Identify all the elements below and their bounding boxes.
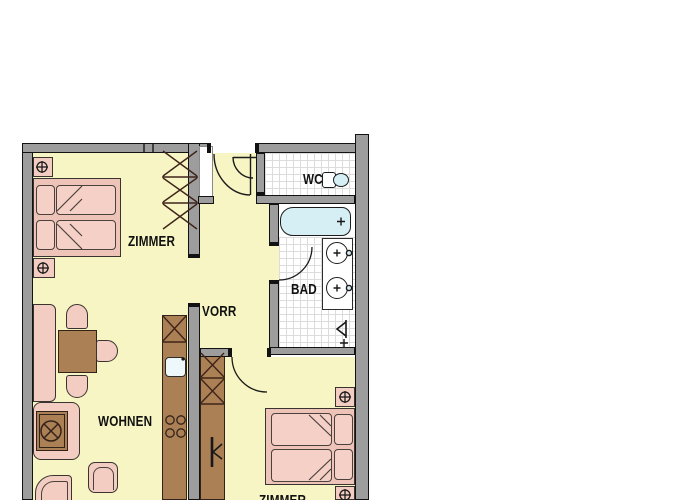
room-label-zimmer-top: ZIMMER [128, 234, 175, 249]
bed-mattress [56, 185, 116, 215]
nightstand [33, 258, 55, 278]
bed-pillow [36, 185, 55, 215]
door-jamb [188, 254, 200, 258]
bed-pillow [334, 449, 353, 480]
nightstand [335, 387, 355, 407]
chair [66, 304, 88, 329]
door-jamb [267, 348, 271, 357]
wall-bad-left-upper [269, 204, 279, 246]
corner-table [36, 411, 68, 451]
floor-vorraum [200, 197, 269, 348]
wall-left [22, 143, 33, 500]
wall-top-right [255, 143, 369, 153]
bench-seat [33, 304, 56, 402]
floor-passage-gap [188, 258, 200, 303]
toilet-bowl [333, 173, 349, 187]
door-jamb [188, 303, 200, 307]
room-label-vorraum: VORR [202, 304, 236, 319]
entrance-niche-stub [198, 196, 214, 204]
floor-vorraum-upper [213, 153, 256, 197]
armchair [88, 462, 118, 493]
bedroom-cabinet [200, 352, 225, 500]
wall-wc-bottom [256, 195, 355, 204]
floor-bad-door-gap [269, 246, 279, 280]
kitchenette [162, 315, 187, 500]
armchair-corner [35, 475, 72, 500]
wall-right [355, 134, 369, 500]
nightstand [33, 157, 53, 177]
bathtub [280, 207, 351, 236]
washbasin [326, 242, 348, 264]
armchair-seat-line [41, 481, 68, 500]
kitchen-sink [165, 357, 186, 377]
nightstand [335, 486, 355, 500]
room-label-wc: WC [303, 172, 323, 187]
entrance-niche [199, 146, 213, 197]
room-label-bad: BAD [291, 282, 317, 297]
bed-mattress [56, 220, 116, 250]
room-label-wohnen: WOHNEN [98, 414, 152, 429]
door-jamb [269, 242, 279, 246]
bed-pillow [334, 414, 353, 445]
corner-table-inner-line [39, 414, 65, 448]
floor-zimmer-door-gap [232, 348, 267, 357]
washbasin [326, 277, 348, 299]
bed-pillow [36, 220, 55, 250]
armchair-seat-line [93, 467, 114, 490]
chair [96, 340, 118, 362]
floor-plan-canvas: ZIMMER VORR WOHNEN WC BAD ZIMMER [0, 0, 700, 500]
wall-bad-left-lower [269, 280, 279, 355]
door-jamb [269, 280, 279, 284]
wall-bad-bottom [269, 347, 355, 355]
dining-table [58, 330, 97, 373]
door-jamb [256, 192, 265, 195]
door-jamb [207, 143, 211, 153]
door-jamb [255, 143, 259, 153]
wall-wc-left [256, 153, 265, 197]
bed-mattress [271, 449, 332, 482]
door-jamb [228, 348, 232, 357]
bed-mattress [271, 413, 332, 446]
wall-corridor-lower [188, 303, 200, 500]
chair [66, 375, 88, 398]
wall-top-left [22, 143, 211, 153]
room-label-zimmer-bottom: ZIMMER [259, 493, 306, 500]
